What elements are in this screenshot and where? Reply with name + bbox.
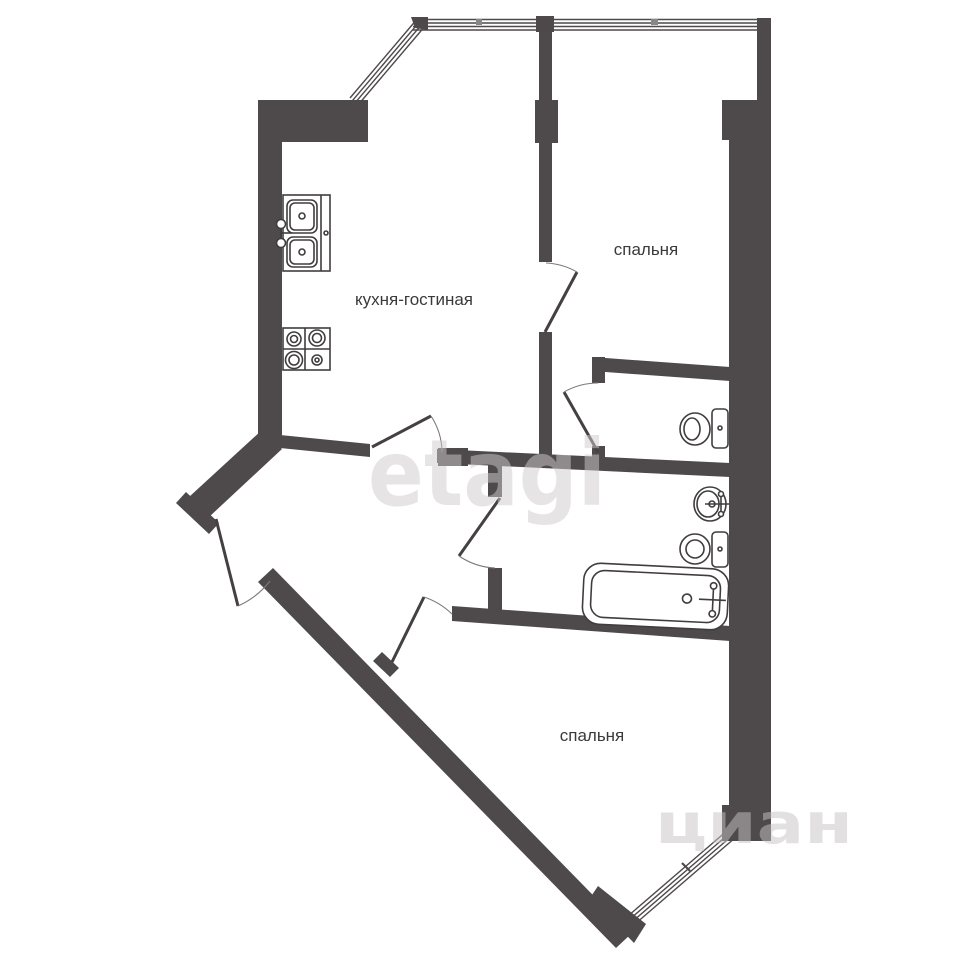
- wall-vertical-top: [539, 20, 552, 102]
- bathroom-toilet-icon: [680, 532, 728, 567]
- watermark-cian: циан: [655, 792, 853, 857]
- wall-right-main: [729, 138, 771, 807]
- kitchen-sink-icon: [277, 195, 331, 271]
- wall-right-bump: [722, 100, 771, 140]
- bedroom-bottom-door: [392, 597, 452, 662]
- fixtures: [277, 195, 730, 631]
- window-tick: [651, 19, 658, 25]
- wall-left: [258, 100, 282, 448]
- wall-diagonal-upper-left: [189, 430, 282, 517]
- watermark-etagi: etagi: [368, 420, 606, 527]
- wall-bath-separator-bottom: [488, 568, 502, 613]
- floor-plan-page: кухня-гостиная спальня спальня etagi циа…: [0, 0, 960, 960]
- top-window: [413, 19, 758, 30]
- wc-toilet-icon: [680, 409, 728, 448]
- stove-icon: [283, 328, 330, 370]
- bay-window-top-left: [350, 18, 426, 105]
- bedroom-top-door: [545, 263, 577, 332]
- wall-kitchen-bottom: [280, 435, 370, 457]
- bathtub-icon: [582, 563, 730, 631]
- room-label-kitchen-living: кухня-гостиная: [355, 290, 473, 309]
- wall-vertical-block: [535, 100, 558, 143]
- entrance-door: [216, 519, 270, 606]
- wall-vertical-mid: [539, 143, 552, 262]
- wall-right-thin: [757, 18, 771, 102]
- room-label-bedroom-bottom: спальня: [560, 726, 625, 745]
- bathroom-sink-icon: [694, 487, 729, 521]
- wall-wc-top: [592, 357, 730, 381]
- window-tick: [476, 19, 482, 25]
- room-label-bedroom-top: спальня: [614, 240, 679, 259]
- floor-plan: кухня-гостиная спальня спальня etagi циа…: [0, 0, 960, 960]
- wall-wc-jamb-top: [592, 357, 605, 383]
